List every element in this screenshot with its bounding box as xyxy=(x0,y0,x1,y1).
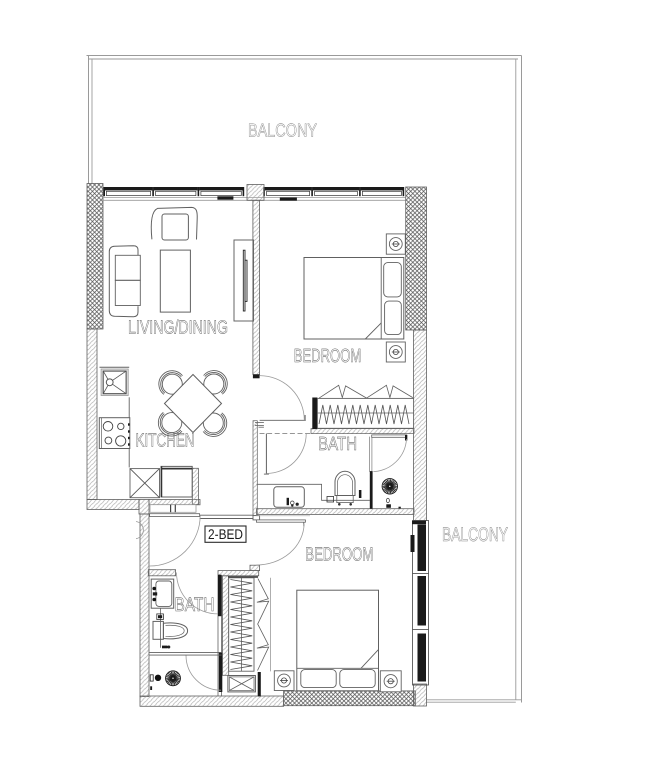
svg-text:BEDROOM: BEDROOM xyxy=(305,545,373,566)
svg-text:BATH: BATH xyxy=(318,434,357,455)
svg-text:BALCONY: BALCONY xyxy=(248,120,317,141)
svg-text:KITCHEN: KITCHEN xyxy=(136,431,195,452)
svg-text:BATH: BATH xyxy=(175,594,215,616)
svg-text:BALCONY: BALCONY xyxy=(442,524,508,546)
svg-text:2-BED: 2-BED xyxy=(208,526,243,542)
svg-text:BEDROOM: BEDROOM xyxy=(294,346,362,367)
svg-text:LIVING/DINING: LIVING/DINING xyxy=(128,318,228,339)
